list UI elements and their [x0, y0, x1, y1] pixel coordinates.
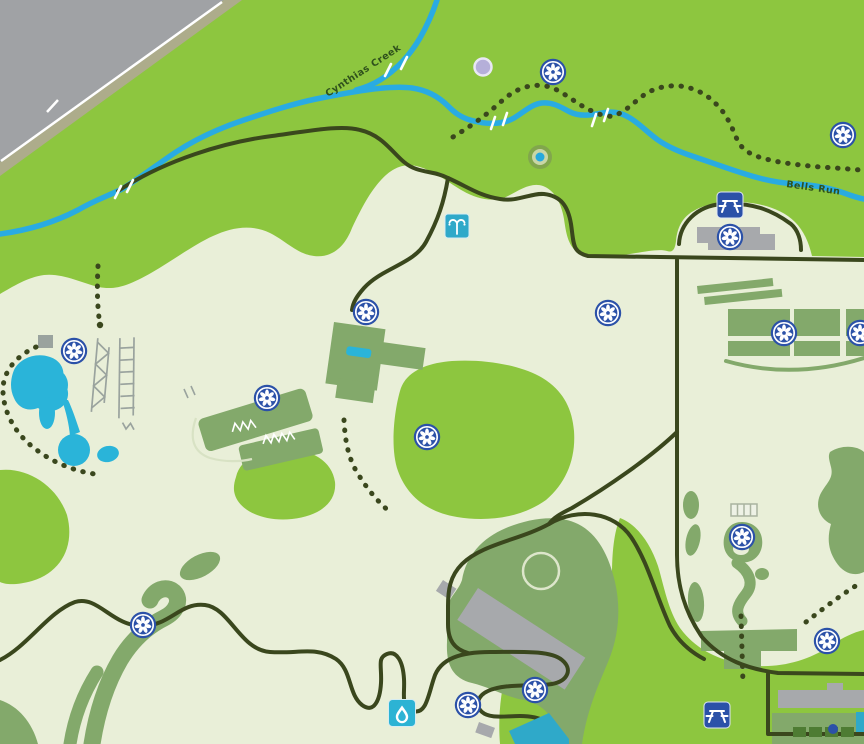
- park-map-stage: Cynthias Creek Bells Run: [0, 0, 864, 744]
- flower-marker-icon[interactable]: [61, 338, 87, 364]
- spring-marker-icon[interactable]: [528, 145, 552, 169]
- dotted-trail-pond-north: [97, 266, 100, 325]
- flower-marker-icon[interactable]: [540, 59, 566, 85]
- flower-marker-icon[interactable]: [455, 692, 481, 718]
- flower-marker-icon[interactable]: [830, 122, 856, 148]
- pond-shelter: [38, 335, 53, 348]
- flower-marker-icon[interactable]: [729, 524, 755, 550]
- fountain-icon[interactable]: [445, 214, 469, 238]
- picnic-area-icon[interactable]: [717, 192, 743, 218]
- flower-marker-icon[interactable]: [814, 628, 840, 654]
- flower-marker-icon[interactable]: [353, 299, 379, 325]
- small-circle-marker[interactable]: [475, 59, 492, 76]
- flower-marker-icon[interactable]: [254, 385, 280, 411]
- picnic-area-icon[interactable]: [704, 702, 730, 728]
- flower-marker-icon[interactable]: [717, 224, 743, 250]
- flower-marker-icon[interactable]: [414, 424, 440, 450]
- water-feature-icon[interactable]: [389, 700, 416, 727]
- flower-marker-icon[interactable]: [595, 300, 621, 326]
- flower-marker-icon[interactable]: [522, 677, 548, 703]
- cyan-edge-building: [856, 712, 864, 732]
- trail-end-dot: [97, 322, 103, 328]
- blue-dot: [828, 724, 838, 734]
- pergola-icon: [731, 504, 757, 516]
- park-map: Cynthias Creek Bells Run: [0, 0, 864, 744]
- flower-marker-icon[interactable]: [771, 320, 797, 346]
- visitor-building: [325, 322, 385, 391]
- flower-marker-icon[interactable]: [130, 612, 156, 638]
